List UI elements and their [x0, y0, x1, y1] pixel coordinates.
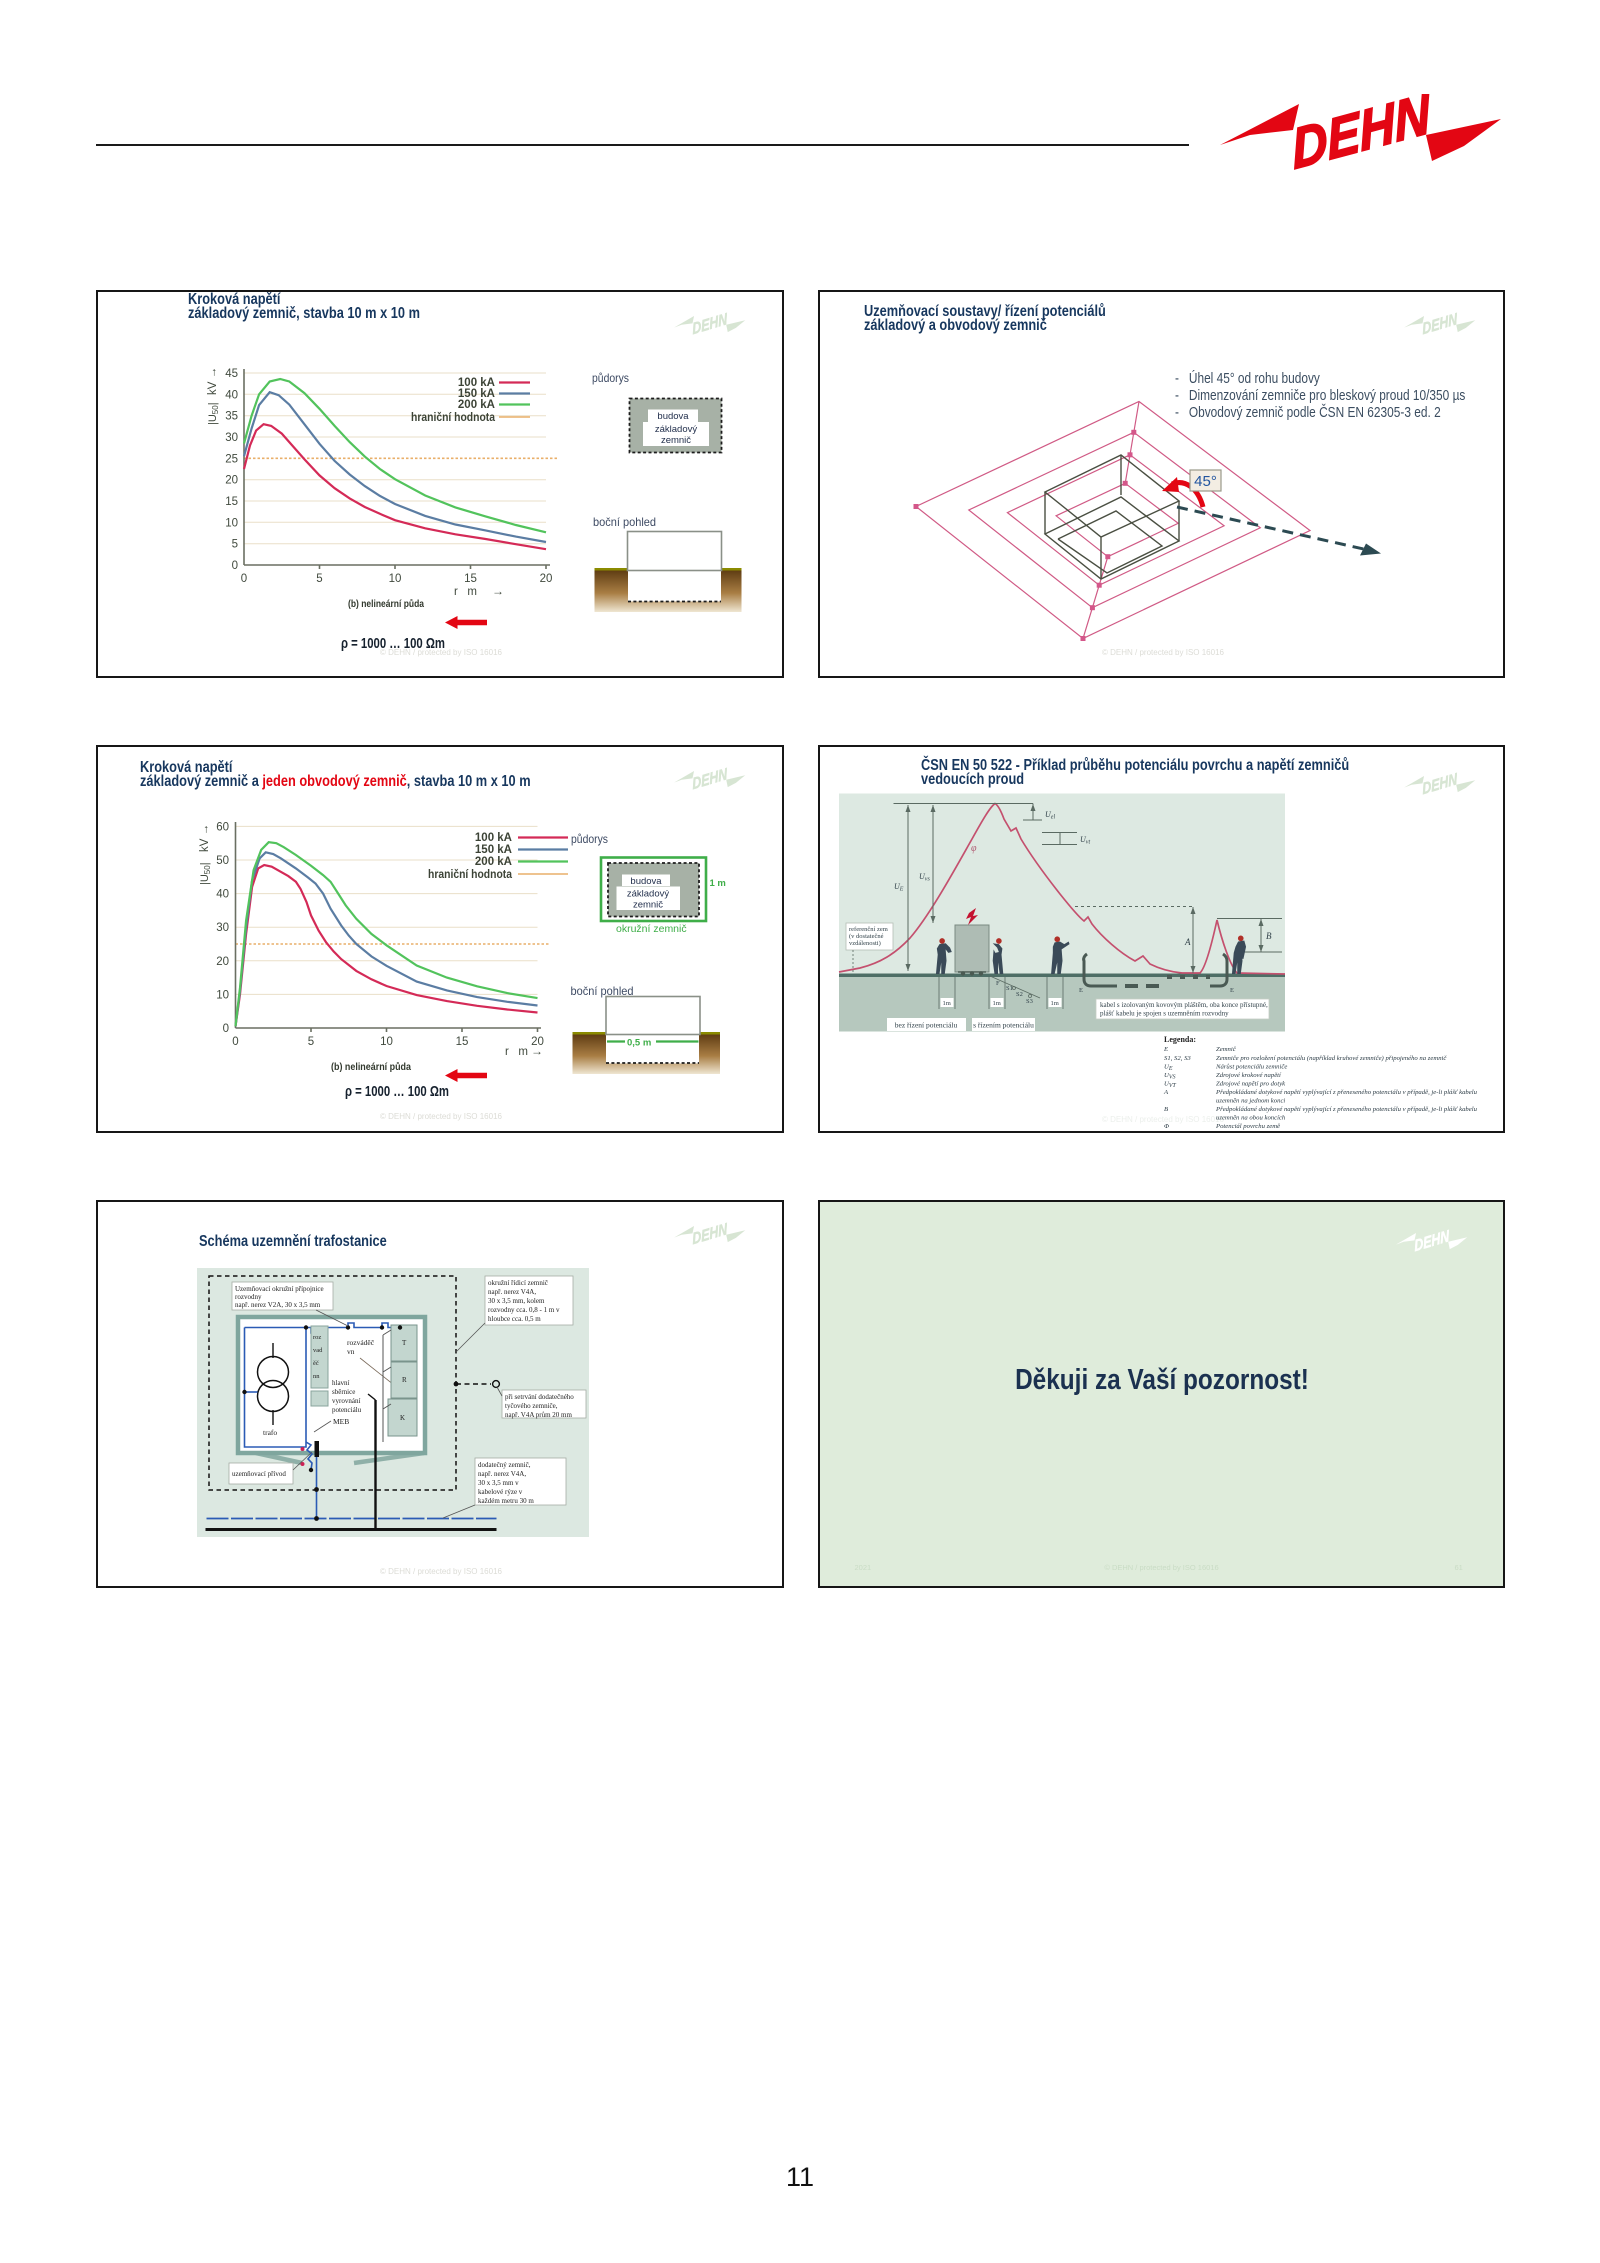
- svg-text:S2: S2: [1016, 991, 1023, 998]
- svg-text:Zemniče pro rozložení potenciá: Zemniče pro rozložení potenciálu (napřík…: [1216, 1055, 1447, 1062]
- svg-text:10: 10: [380, 1036, 393, 1048]
- svg-text:Zdrojové krokové napětí: Zdrojové krokové napětí: [1216, 1072, 1282, 1079]
- svg-text:uzemňovací přívod: uzemňovací přívod: [232, 1470, 286, 1478]
- svg-text:B: B: [1266, 931, 1272, 941]
- svg-text:1 m: 1 m: [710, 878, 726, 889]
- svg-text:budova: budova: [630, 876, 662, 887]
- svg-text:kV →: kV →: [199, 824, 211, 852]
- svg-text:35: 35: [225, 411, 238, 423]
- svg-text:A: A: [1184, 937, 1191, 947]
- svg-text:Předpokládané dotykové napětí: Předpokládané dotykové napětí vyplývajíc…: [1215, 1089, 1478, 1096]
- svg-text:vad: vad: [313, 1347, 323, 1354]
- svg-text:základový: základový: [655, 424, 697, 435]
- svg-text:zemnič: zemnič: [661, 435, 691, 446]
- svg-text:|U50|: |U50|: [199, 862, 212, 885]
- svg-text:0,5 m: 0,5 m: [627, 1038, 651, 1049]
- svg-text:okružní zemnič: okružní zemnič: [616, 923, 687, 935]
- svg-text:0: 0: [223, 1023, 229, 1035]
- svg-text:hlavní: hlavní: [332, 1379, 350, 1387]
- svg-text:30 x 3,5 mm, kolem: 30 x 3,5 mm, kolem: [488, 1297, 545, 1305]
- svg-text:Předpokládané dotykové napětí: Předpokládané dotykové napětí vyplývajíc…: [1215, 1106, 1478, 1113]
- svg-text:20: 20: [225, 475, 238, 487]
- svg-text:© DEHN / protected by ISO 1601: © DEHN / protected by ISO 16016: [380, 648, 503, 657]
- svg-text:rozváděč: rozváděč: [347, 1338, 375, 1347]
- svg-text:0: 0: [232, 1036, 238, 1048]
- svg-text:1m: 1m: [992, 1000, 1000, 1007]
- svg-text:Zemnič: Zemnič: [1216, 1046, 1237, 1053]
- svg-text:0: 0: [241, 573, 247, 585]
- svg-text:S3: S3: [1026, 998, 1033, 1005]
- svg-text:45: 45: [225, 368, 238, 380]
- svg-text:© DEHN / protected by ISO 1601: © DEHN / protected by ISO 16016: [380, 1567, 503, 1576]
- svg-text:50: 50: [216, 855, 229, 867]
- svg-text:→: →: [492, 584, 504, 598]
- svg-text:30 x 3,5 mm v: 30 x 3,5 mm v: [478, 1479, 519, 1487]
- svg-text:5: 5: [316, 573, 322, 585]
- svg-text:např. nerez V4A,: např. nerez V4A,: [488, 1288, 536, 1296]
- svg-text:např. nerez V2A, 30 x 3,5 mm: např. nerez V2A, 30 x 3,5 mm: [235, 1301, 321, 1309]
- svg-text:E: E: [1079, 987, 1083, 994]
- svg-text:půdorys: půdorys: [571, 832, 608, 846]
- svg-text:20: 20: [540, 573, 553, 585]
- svg-text:Uzemňovací okružní přípojnice: Uzemňovací okružní přípojnice: [235, 1285, 324, 1293]
- svg-text:UE: UE: [1164, 1064, 1173, 1073]
- svg-text:R: R: [402, 1376, 407, 1384]
- svg-text:vn: vn: [347, 1347, 355, 1356]
- svg-text:40: 40: [216, 889, 229, 901]
- svg-text:30: 30: [216, 922, 229, 934]
- svg-text:vzdálenosti): vzdálenosti): [849, 940, 881, 947]
- svg-text:15: 15: [464, 573, 477, 585]
- svg-text:© DEHN / protected by ISO 1601: © DEHN / protected by ISO 16016: [380, 1112, 503, 1121]
- svg-text:referenční zem: referenční zem: [849, 926, 888, 933]
- svg-text:r m: r m: [454, 586, 477, 598]
- svg-text:tyčového zemniče,: tyčového zemniče,: [505, 1402, 558, 1410]
- svg-text:UVS: UVS: [1164, 1072, 1176, 1081]
- svg-text:potenciálu: potenciálu: [332, 1406, 362, 1414]
- svg-text:okružní řídicí zemnič: okružní řídicí zemnič: [488, 1279, 548, 1287]
- svg-text:hraniční hodnota: hraniční hodnota: [428, 869, 513, 881]
- svg-text:zemnič: zemnič: [633, 900, 663, 911]
- svg-text:sběrnice: sběrnice: [332, 1388, 355, 1396]
- svg-text:kV →: kV →: [207, 367, 219, 395]
- svg-text:45°: 45°: [1194, 473, 1217, 490]
- svg-text:5: 5: [308, 1036, 314, 1048]
- svg-text:T: T: [402, 1339, 407, 1347]
- svg-text:uzemněn na obou koncích: uzemněn na obou koncích: [1216, 1115, 1286, 1122]
- svg-text:při setrvání dodatečného: při setrvání dodatečného: [505, 1393, 574, 1401]
- svg-text:uzemněn na jednom konci: uzemněn na jednom konci: [1216, 1098, 1285, 1105]
- svg-text:hloubce cca. 0,5 m: hloubce cca. 0,5 m: [488, 1315, 541, 1323]
- svg-text:Zdrojové napětí pro dotyk: Zdrojové napětí pro dotyk: [1216, 1081, 1286, 1088]
- svg-text:15: 15: [456, 1036, 469, 1048]
- svg-text:rozvodny cca. 0,8 - 1 m v: rozvodny cca. 0,8 - 1 m v: [488, 1306, 560, 1314]
- svg-text:trafo: trafo: [263, 1428, 277, 1437]
- svg-text:(b) nelineární půda: (b) nelineární půda: [348, 598, 424, 610]
- svg-text:boční pohled: boční pohled: [593, 515, 656, 529]
- svg-text:1m: 1m: [942, 1000, 950, 1007]
- svg-text:10: 10: [225, 517, 238, 529]
- svg-text:5: 5: [232, 539, 238, 551]
- svg-text:10: 10: [389, 573, 402, 585]
- svg-text:plášť kabelu je spojen s uzemn: plášť kabelu je spojen s uzemněním rozvo…: [1100, 1010, 1229, 1018]
- svg-text:© DEHN / protected by ISO 1601: © DEHN / protected by ISO 16016: [1102, 648, 1225, 657]
- svg-text:|U50|: |U50|: [207, 402, 220, 425]
- svg-text:budova: budova: [657, 411, 689, 422]
- svg-text:Nárůst potenciálu zemniče: Nárůst potenciálu zemniče: [1215, 1064, 1287, 1071]
- svg-text:40: 40: [225, 389, 238, 401]
- svg-text:hraniční hodnota: hraniční hodnota: [411, 412, 496, 424]
- svg-text:A: A: [1163, 1089, 1169, 1096]
- svg-text:(v dostatečné: (v dostatečné: [849, 933, 884, 940]
- svg-text:K: K: [400, 1414, 405, 1422]
- svg-text:Φ: Φ: [1164, 1123, 1169, 1130]
- svg-text:25: 25: [225, 453, 238, 465]
- svg-text:1m: 1m: [1050, 1000, 1058, 1007]
- svg-text:vyrovnání: vyrovnání: [332, 1397, 360, 1405]
- svg-text:100 kA: 100 kA: [475, 832, 512, 844]
- svg-text:B: B: [1164, 1106, 1168, 1113]
- svg-text:15: 15: [225, 496, 238, 508]
- svg-text:150 kA: 150 kA: [475, 844, 512, 856]
- svg-text:(b) nelineární půda: (b) nelineární půda: [331, 1061, 411, 1073]
- svg-text:F: F: [996, 980, 1000, 987]
- svg-text:S1, S2, S3: S1, S2, S3: [1164, 1055, 1191, 1062]
- svg-text:200 kA: 200 kA: [475, 856, 512, 868]
- svg-text:UVT: UVT: [1164, 1081, 1177, 1090]
- svg-text:φ: φ: [971, 843, 977, 854]
- svg-text:základový: základový: [627, 889, 669, 900]
- svg-text:r m: r m: [505, 1046, 528, 1058]
- svg-text:rozvodny: rozvodny: [235, 1293, 262, 1301]
- svg-text:E: E: [1163, 1046, 1168, 1053]
- svg-text:200 kA: 200 kA: [458, 399, 495, 411]
- svg-text:10: 10: [216, 989, 229, 1001]
- svg-text:půdorys: půdorys: [592, 371, 629, 385]
- svg-text:např. V4A prům 20 mm: např. V4A prům 20 mm: [505, 1411, 573, 1419]
- svg-text:MEB: MEB: [333, 1417, 349, 1426]
- svg-text:roz: roz: [313, 1334, 321, 1341]
- svg-text:ρ = 1000 … 100 Ωm: ρ = 1000 … 100 Ωm: [345, 1084, 449, 1100]
- svg-text:kabelové rýze v: kabelové rýze v: [478, 1488, 523, 1496]
- svg-text:E: E: [1230, 987, 1234, 994]
- svg-text:Legenda:: Legenda:: [1164, 1035, 1196, 1044]
- svg-text:s řízením potenciálu: s řízením potenciálu: [973, 1021, 1034, 1030]
- svg-text:0: 0: [232, 560, 238, 572]
- svg-text:S1: S1: [1006, 985, 1013, 992]
- svg-text:např. nerez V4A,: např. nerez V4A,: [478, 1470, 526, 1478]
- svg-text:20: 20: [216, 956, 229, 968]
- svg-text:nn: nn: [313, 1373, 320, 1380]
- svg-text:→: →: [531, 1044, 543, 1058]
- svg-text:Potenciál povrchu země: Potenciál povrchu země: [1215, 1123, 1280, 1130]
- svg-text:kabel s izolovaným kovovým plá: kabel s izolovaným kovovým pláštěm, oba …: [1100, 1001, 1268, 1009]
- svg-text:ěč: ěč: [313, 1360, 319, 1367]
- svg-text:30: 30: [225, 432, 238, 444]
- svg-text:bez řízení potenciálu: bez řízení potenciálu: [894, 1021, 957, 1030]
- svg-text:dodatečný zemnič,: dodatečný zemnič,: [478, 1461, 531, 1469]
- svg-text:každém metru 30 m: každém metru 30 m: [478, 1497, 534, 1505]
- svg-text:60: 60: [216, 821, 229, 833]
